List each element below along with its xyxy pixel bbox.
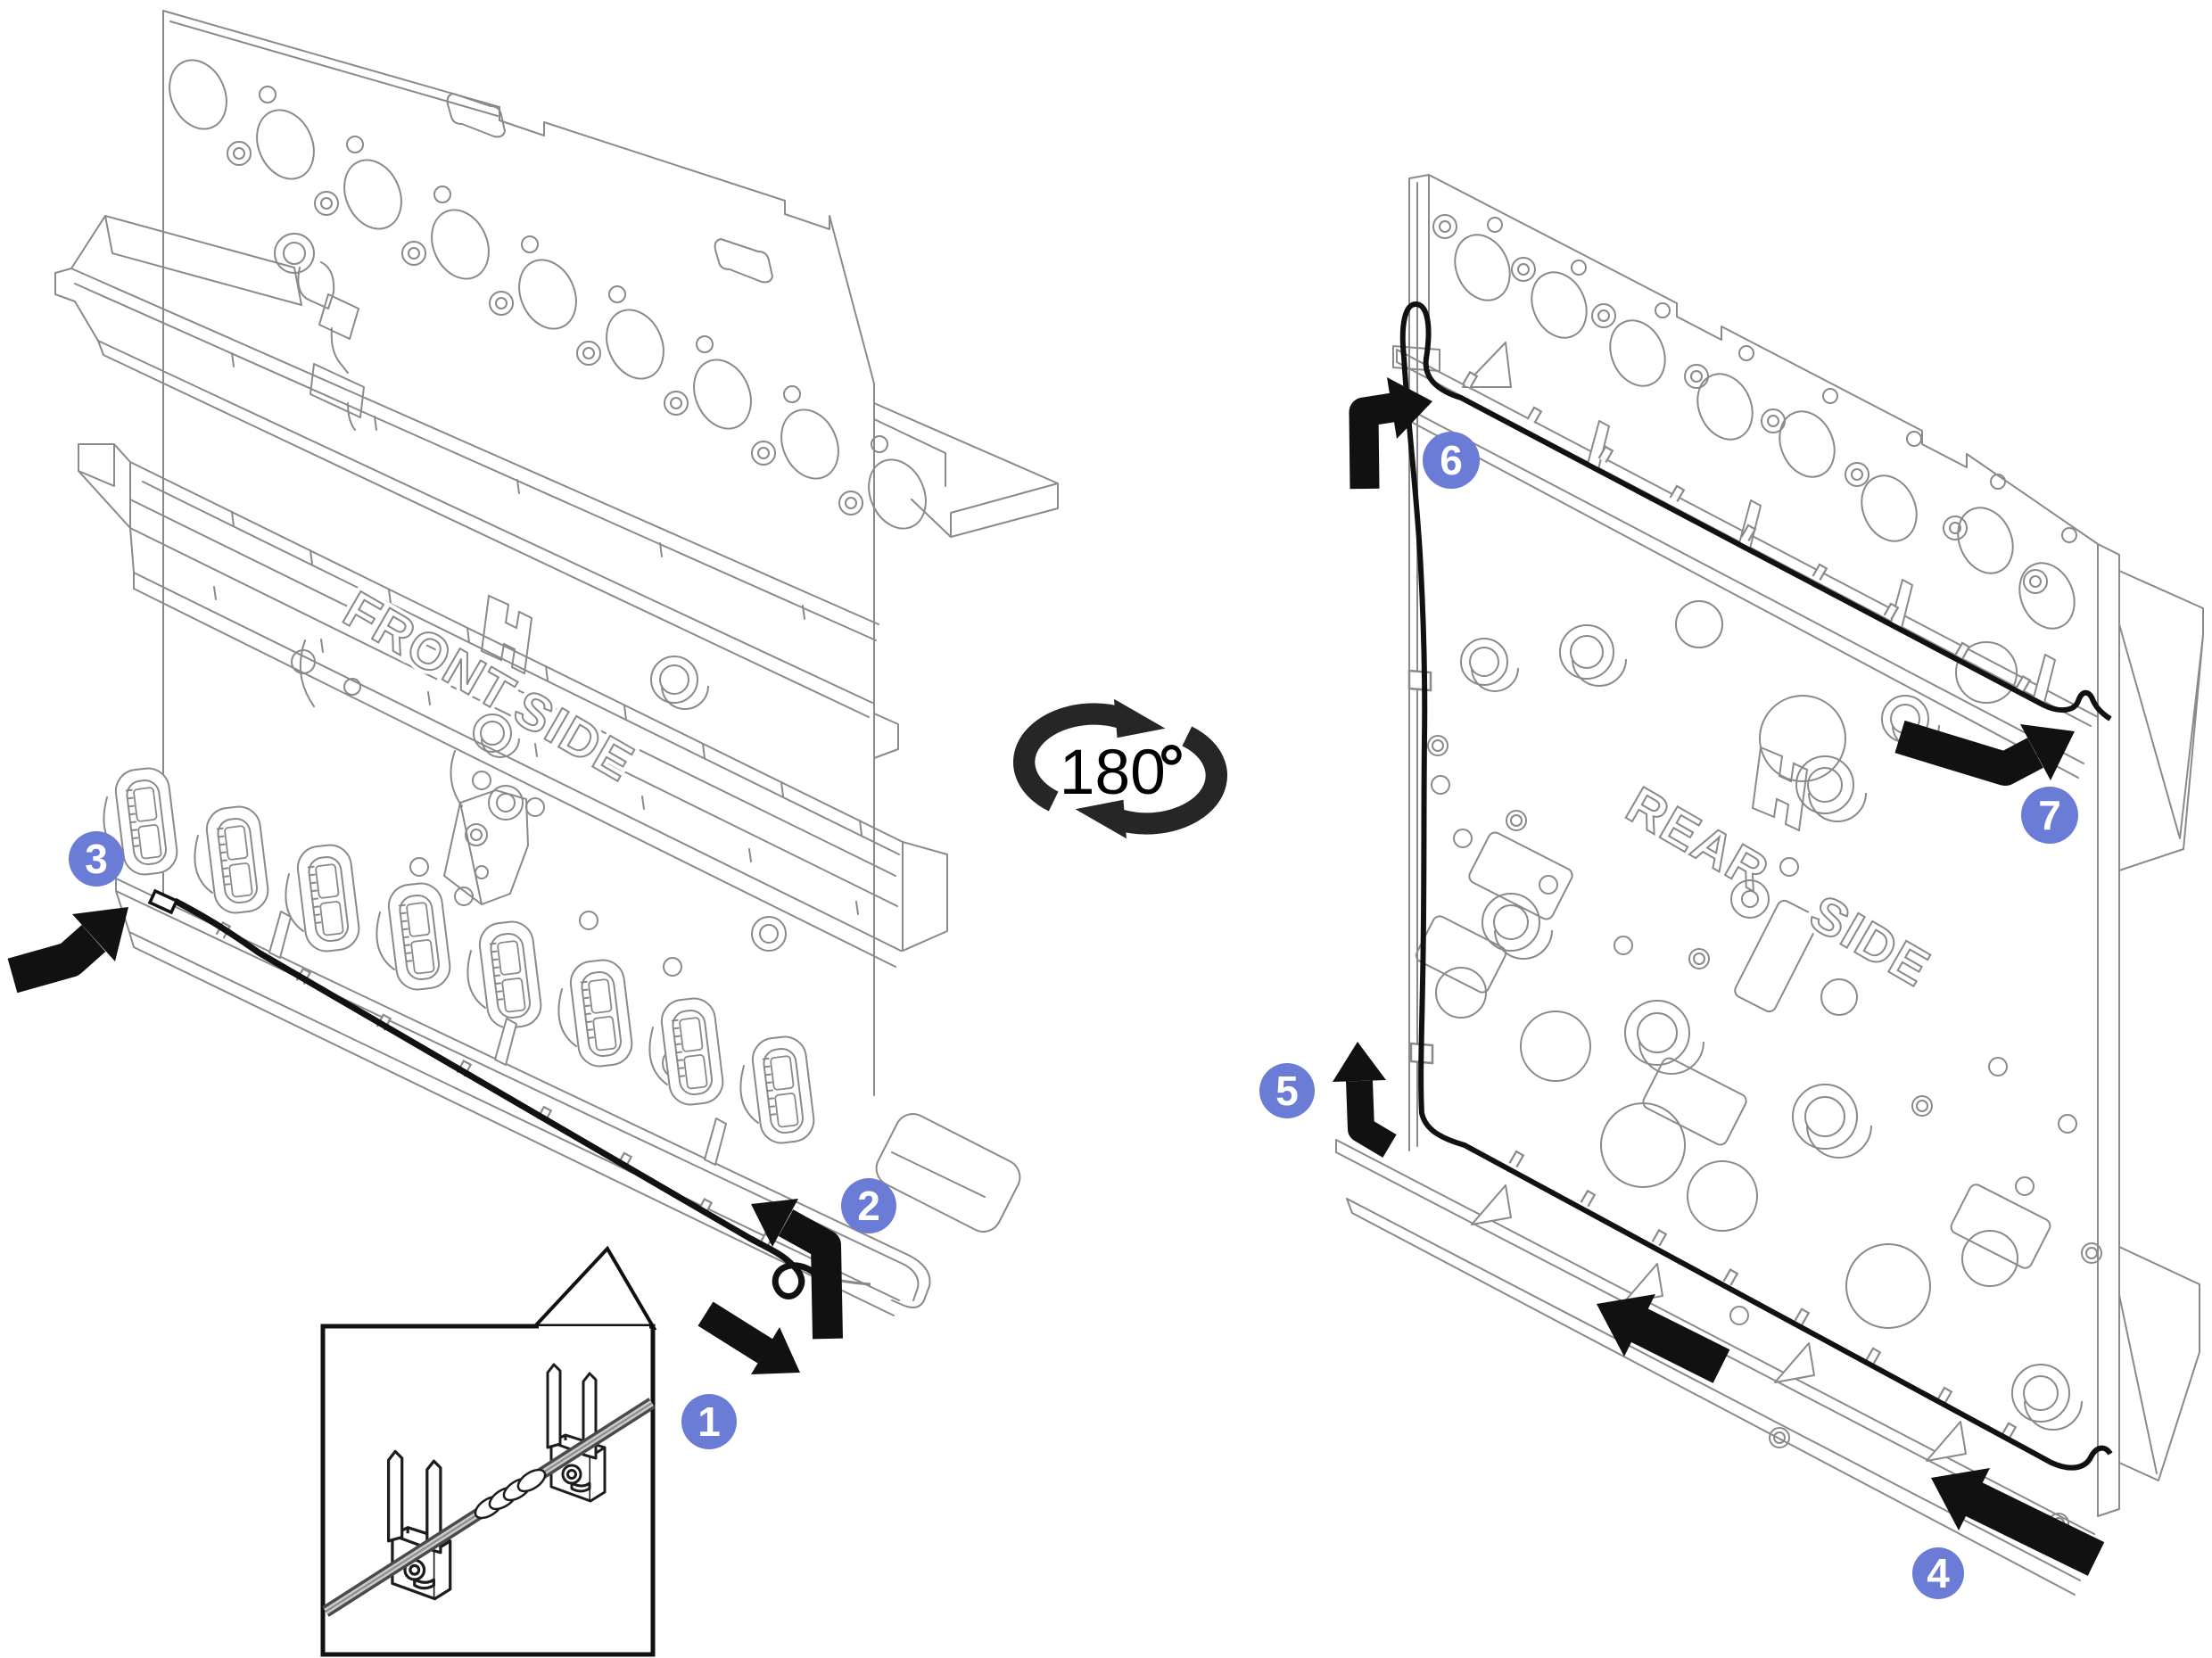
svg-text:5: 5 — [1275, 1068, 1299, 1114]
svg-text:2: 2 — [857, 1183, 880, 1229]
svg-text:4: 4 — [1927, 1550, 1950, 1596]
svg-text:7: 7 — [2038, 792, 2061, 838]
svg-text:1: 1 — [697, 1398, 721, 1445]
svg-text:3: 3 — [85, 836, 108, 882]
svg-text:180: 180 — [1060, 737, 1166, 808]
svg-text:6: 6 — [1440, 437, 1463, 483]
